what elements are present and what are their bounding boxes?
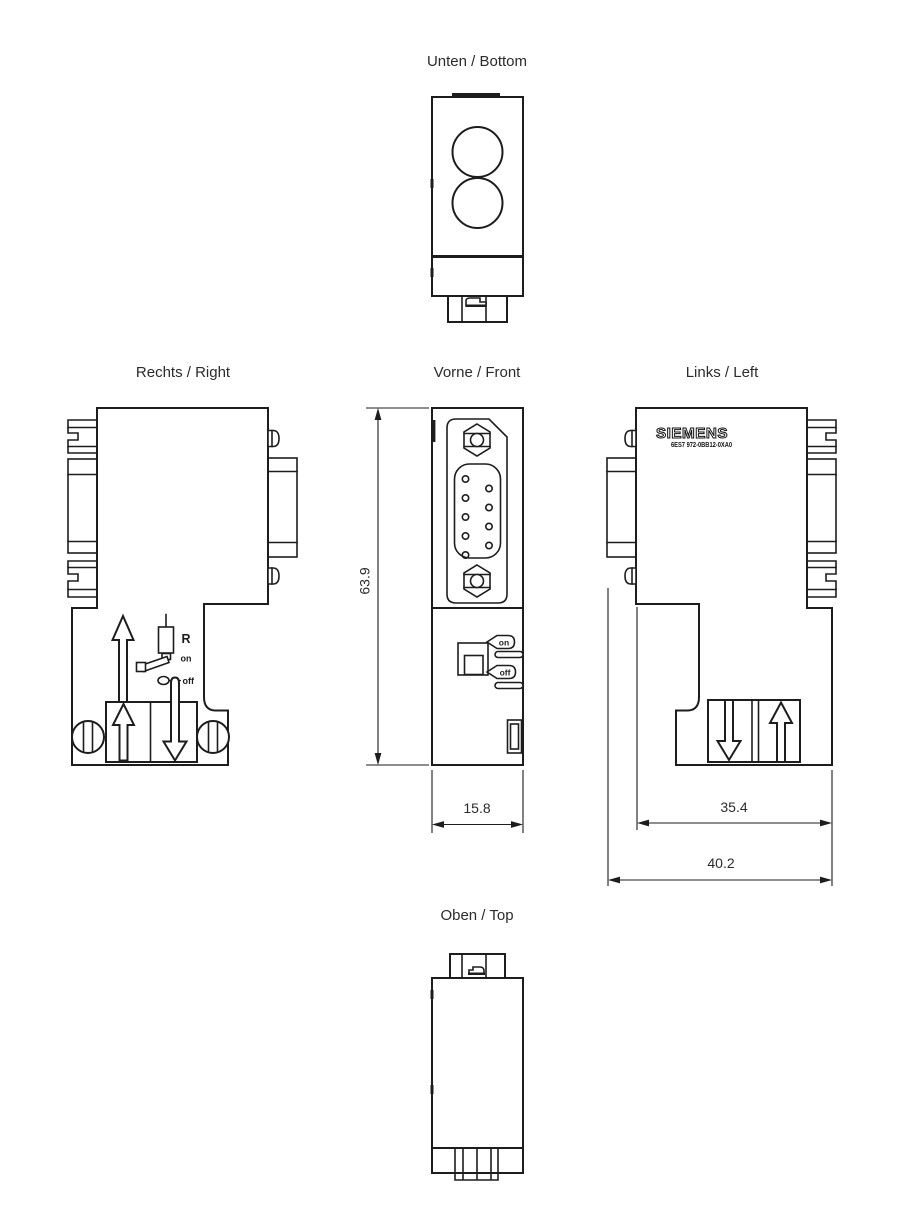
dimension-height-value: 63.9	[357, 567, 373, 594]
left-rail-clip-top	[807, 420, 836, 453]
view-left: Links / Left SIEMENS 6ES7 972-0BB12-0XA0	[607, 364, 836, 765]
left-side-connector-right	[807, 459, 836, 553]
front-off-label: off	[500, 668, 511, 678]
siemens-logo: SIEMENS	[656, 425, 728, 442]
removal-arrow-down-left-view	[718, 700, 741, 760]
insertion-arrow-up	[113, 616, 134, 702]
clamp-screw-right	[197, 721, 229, 753]
orthographic-views-drawing: Unten / Bottom Rechts / Right	[0, 0, 906, 1229]
right-off-label: off	[183, 676, 195, 686]
dimension-left-outer-width: 40.2	[608, 588, 832, 886]
right-screw-boss-bottom	[268, 568, 279, 584]
left-dsub-profile	[607, 458, 636, 557]
view-front: Vorne / Front	[432, 364, 523, 765]
right-rail-clip-bottom	[68, 561, 97, 597]
terminating-resistor-symbol	[137, 615, 174, 672]
clamp-screw-left	[72, 721, 104, 753]
right-dsub-profile	[268, 458, 297, 557]
part-number: 6ES7 972-0BB12-0XA0	[671, 442, 732, 449]
right-rail-clip-top	[68, 420, 97, 453]
view-top-label: Oben / Top	[440, 907, 513, 924]
cable-hole-1	[453, 127, 503, 177]
insertion-arrow-up-inner	[113, 704, 134, 761]
left-screw-boss-bottom	[625, 568, 636, 584]
front-on-label: on	[499, 638, 509, 648]
view-right: Rechts / Right	[68, 364, 297, 765]
left-rail-clip-bottom	[807, 561, 836, 597]
dimension-height: 63.9	[357, 408, 430, 765]
termination-switch: on off	[458, 636, 523, 689]
front-latch	[508, 720, 522, 753]
left-cable-clamp	[708, 700, 800, 762]
dsub-hex-post-bottom	[464, 565, 490, 597]
view-bottom-label: Unten / Bottom	[427, 53, 527, 70]
right-on-label: on	[181, 654, 192, 664]
view-front-label: Vorne / Front	[434, 364, 522, 381]
top-connector-tab	[450, 954, 505, 978]
dsub-hex-post-top	[464, 424, 490, 456]
top-cable-entry	[432, 1148, 523, 1180]
dimension-front-width-value: 15.8	[463, 800, 490, 816]
switch-slider	[465, 656, 484, 675]
dimension-left-inner-width-value: 35.4	[720, 799, 747, 815]
dsub-connector-face	[455, 464, 501, 558]
right-screw-boss-top	[268, 431, 279, 447]
view-bottom: Unten / Bottom	[427, 53, 527, 322]
dimension-left-inner-width: 35.4	[637, 607, 832, 830]
bottom-top-seal	[452, 93, 500, 98]
right-side-connector	[68, 459, 97, 553]
view-left-label: Links / Left	[686, 364, 759, 381]
left-screw-boss-top	[625, 431, 636, 447]
cable-hole-2	[453, 178, 503, 228]
dimension-left-outer-width-value: 40.2	[707, 855, 734, 871]
view-top: Oben / Top	[431, 907, 524, 1180]
top-body	[432, 978, 523, 1148]
insertion-arrow-up-left-view	[770, 703, 792, 763]
bottom-connector-tab	[448, 296, 507, 322]
resistor-label: R	[182, 632, 191, 646]
removal-arrow-down	[164, 678, 187, 761]
dimension-front-width: 15.8	[432, 770, 523, 833]
switch-off-contact	[158, 677, 169, 685]
view-right-label: Rechts / Right	[136, 364, 231, 381]
